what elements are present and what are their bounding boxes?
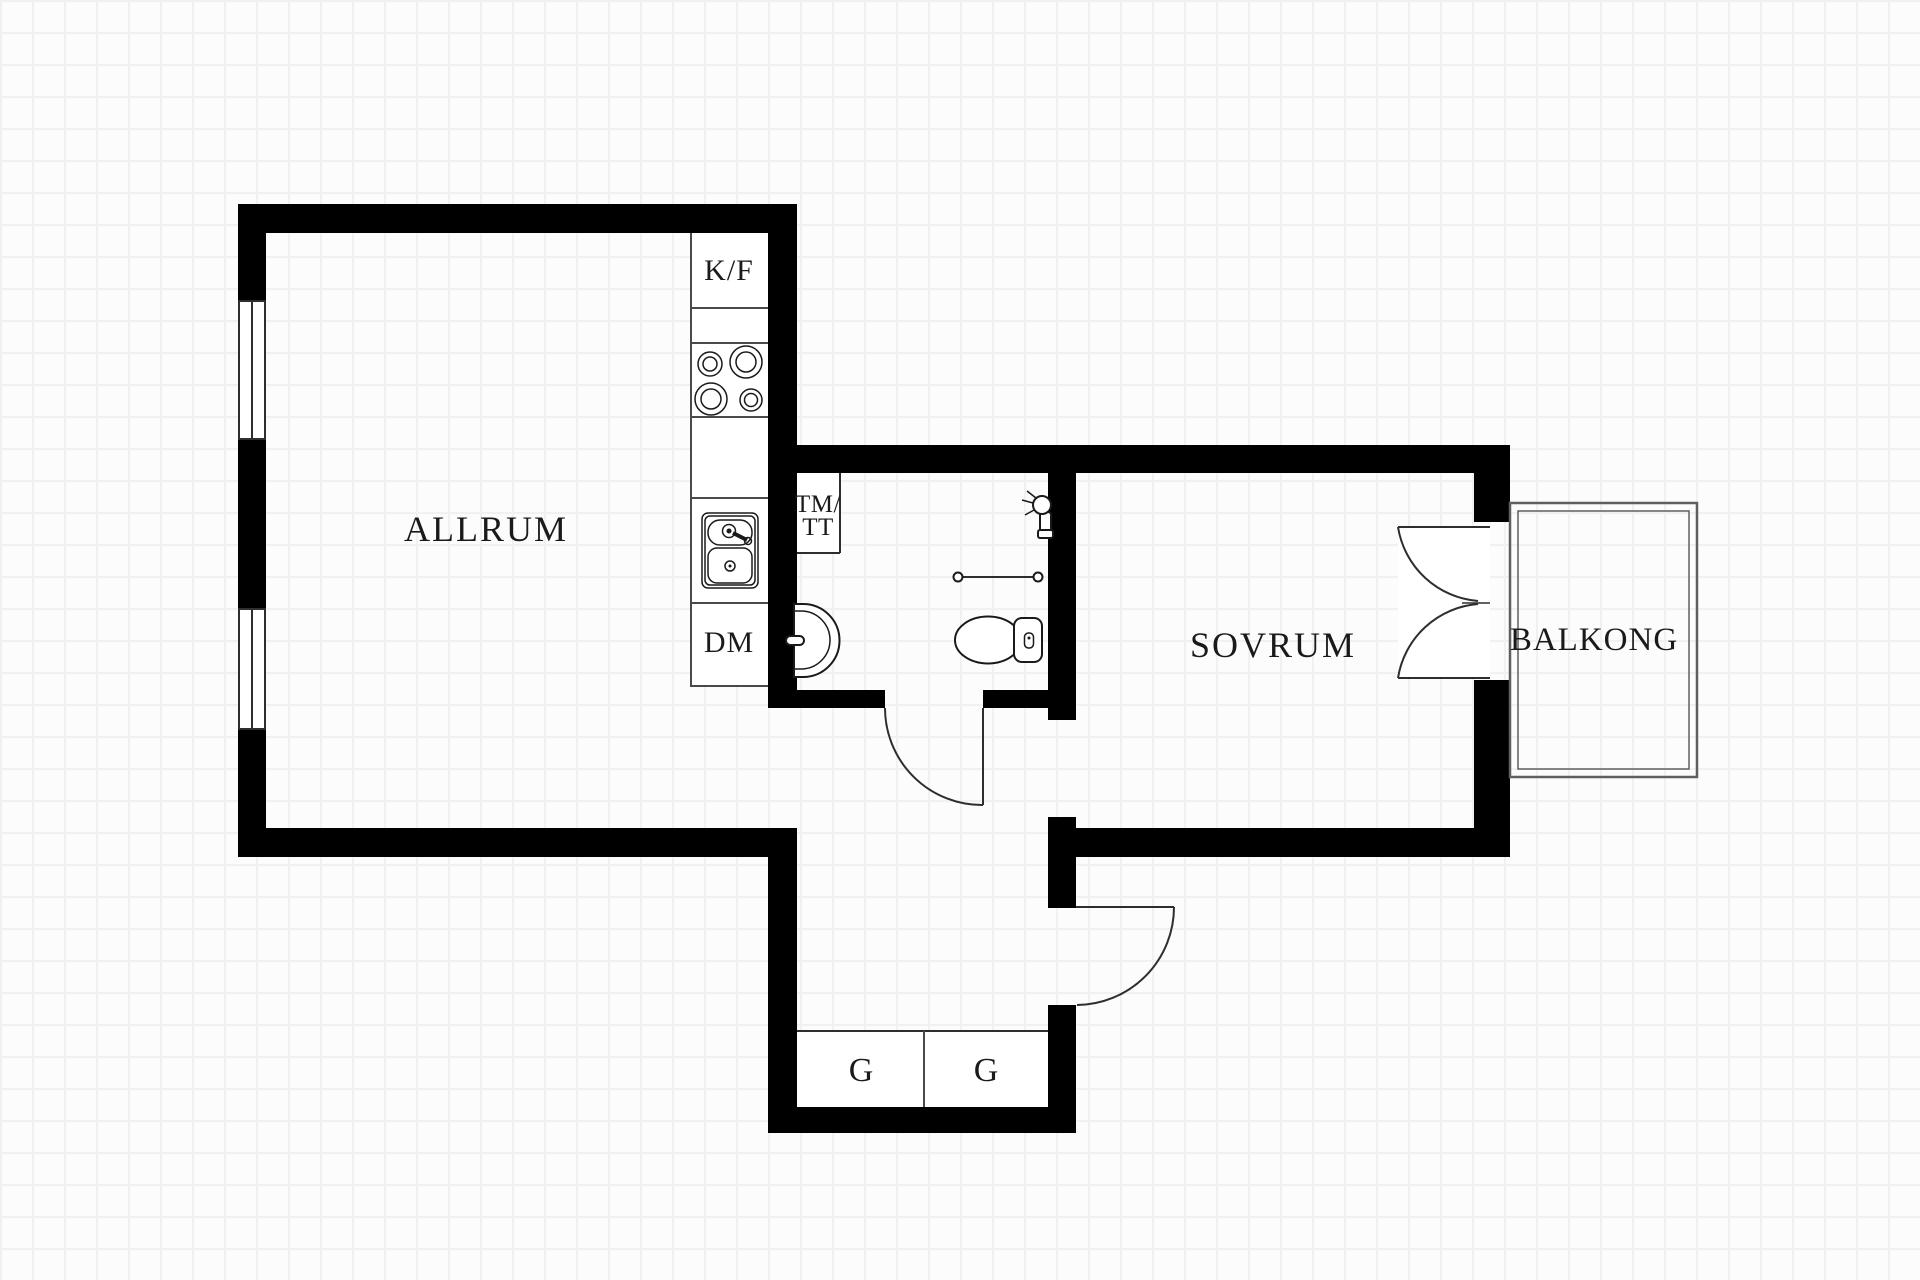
balcony-label: BALKONG bbox=[1510, 622, 1678, 658]
toilet-bowl bbox=[955, 617, 1021, 664]
bedroom-bottom-wall bbox=[1076, 828, 1510, 857]
kitchen-strip-underlay bbox=[690, 233, 768, 686]
entrance-door-swing-arc bbox=[1077, 907, 1174, 1005]
fridge-freezer-label: K/F bbox=[704, 254, 754, 287]
wardrobe-right-label: G bbox=[974, 1052, 999, 1089]
dishwasher-label: DM bbox=[704, 626, 754, 659]
toilet-icon bbox=[955, 617, 1042, 664]
shower-curtain-rail bbox=[954, 573, 1043, 582]
bathroom-bedroom-divider-wall bbox=[1048, 445, 1076, 720]
left-wall-upper bbox=[238, 204, 266, 300]
bedroom-top-wall bbox=[797, 445, 1510, 473]
wardrobe-left-label: G bbox=[849, 1052, 874, 1089]
bathroom: TM/ TT bbox=[786, 473, 1053, 677]
washbasin-icon bbox=[786, 604, 840, 677]
left-wall-mid bbox=[238, 440, 266, 608]
floorplan-drawing: K/F DM TM/ TT bbox=[0, 0, 1920, 1280]
wardrobe-underlay bbox=[797, 1031, 1048, 1107]
bathroom-south-wall-left bbox=[797, 690, 885, 708]
bedroom-label: SOVRUM bbox=[1190, 625, 1356, 665]
walls bbox=[238, 204, 1510, 1133]
bathroom-door-swing-arc bbox=[885, 708, 983, 805]
white-underlays bbox=[238, 233, 1490, 1107]
hall-bottom-wall bbox=[768, 1107, 1076, 1133]
floorplan-page: { "floorplan": { "labels": { "living_roo… bbox=[0, 0, 1920, 1280]
livingroom-bottom-wall bbox=[238, 828, 797, 857]
basin-tap bbox=[786, 636, 804, 645]
kitchen-east-wall bbox=[768, 204, 797, 708]
washer-dryer-label-line2: TT bbox=[802, 514, 834, 541]
top-wall bbox=[238, 204, 797, 233]
shower-icon bbox=[1022, 491, 1053, 538]
hall-east-wall-upper bbox=[1048, 817, 1076, 908]
right-wall-upper bbox=[1474, 445, 1510, 522]
livingroom-label: ALLRUM bbox=[404, 509, 568, 549]
hall-west-wall bbox=[768, 857, 797, 1133]
toilet-tank bbox=[1014, 618, 1042, 662]
